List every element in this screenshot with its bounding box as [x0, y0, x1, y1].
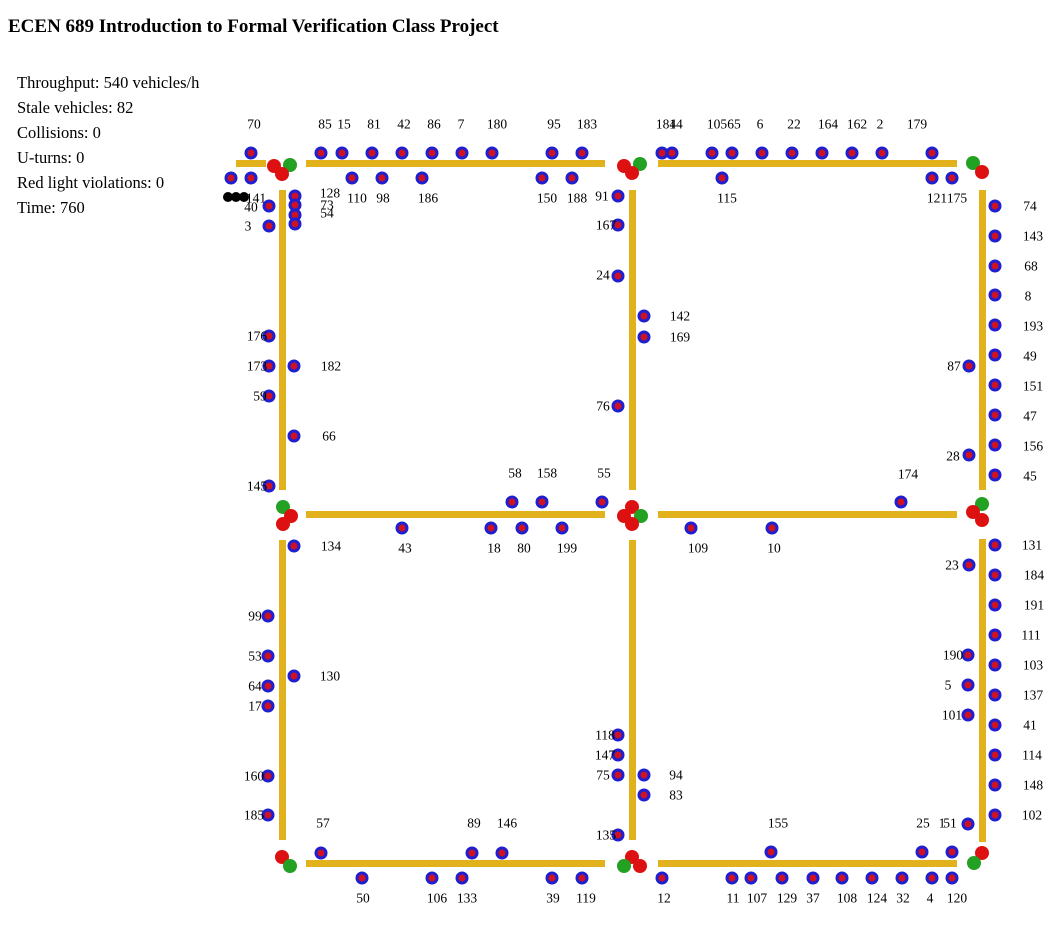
- vehicle-label: 65: [727, 117, 741, 131]
- vehicle-label: 87: [947, 359, 961, 373]
- traffic-light-red: [625, 517, 639, 531]
- vehicle-dot: [745, 872, 758, 885]
- stat-line-5: Time: 760: [17, 195, 199, 220]
- vehicle-dot: [566, 172, 579, 185]
- vehicle-label: 91: [595, 189, 609, 203]
- vehicle-dot: [426, 147, 439, 160]
- vehicle-label: 14: [669, 117, 683, 131]
- vehicle-label: 86: [427, 117, 441, 131]
- page-title: ECEN 689 Introduction to Formal Verifica…: [8, 16, 499, 38]
- vehicle-label: 2: [877, 117, 884, 131]
- vehicle-dot: [262, 610, 275, 623]
- vehicle-label: 131: [1022, 538, 1042, 552]
- road-segment: [236, 160, 266, 167]
- vehicle-dot: [946, 872, 959, 885]
- vehicle-label: 109: [688, 541, 708, 555]
- vehicle-dot: [776, 872, 789, 885]
- vehicle-dot: [638, 331, 651, 344]
- vehicle-dot: [546, 872, 559, 885]
- vehicle-label: 180: [487, 117, 507, 131]
- vehicle-dot: [416, 172, 429, 185]
- vehicle-label: 32: [896, 891, 910, 905]
- stat-line-2: Collisions: 0: [17, 120, 199, 145]
- vehicle-dot: [989, 349, 1002, 362]
- vehicle-label: 10: [767, 541, 781, 555]
- vehicle-dot: [876, 147, 889, 160]
- vehicle-dot: [916, 846, 929, 859]
- vehicle-dot: [666, 147, 679, 160]
- vehicle-dot: [989, 569, 1002, 582]
- vehicle-dot: [989, 719, 1002, 732]
- vehicle-dot: [685, 522, 698, 535]
- vehicle-label: 41: [1023, 718, 1037, 732]
- vehicle-label: 188: [567, 191, 587, 205]
- vehicle-dot: [786, 147, 799, 160]
- traffic-light-red: [276, 517, 290, 531]
- vehicle-dot: [576, 872, 589, 885]
- vehicle-label: 130: [320, 669, 340, 683]
- vehicle-label: 150: [537, 191, 557, 205]
- road-segment: [306, 160, 605, 167]
- vehicle-label: 39: [546, 891, 560, 905]
- vehicle-dot: [989, 289, 1002, 302]
- vehicle-dot: [245, 172, 258, 185]
- vehicle-label: 162: [847, 117, 867, 131]
- vehicle-label: 50: [356, 891, 370, 905]
- vehicle-dot: [756, 147, 769, 160]
- vehicle-dot: [288, 670, 301, 683]
- vehicle-label: 45: [1023, 469, 1037, 483]
- stat-line-0: Throughput: 540 vehicles/h: [17, 70, 199, 95]
- vehicle-dot: [496, 847, 509, 860]
- vehicle-label: 85: [318, 117, 332, 131]
- vehicle-label: 101: [942, 708, 962, 722]
- vehicle-dot: [288, 540, 301, 553]
- vehicle-dot: [895, 496, 908, 509]
- vehicle-label: 129: [777, 891, 797, 905]
- vehicle-label: 147: [595, 748, 615, 762]
- stat-line-1: Stale vehicles: 82: [17, 95, 199, 120]
- vehicle-label: 120: [947, 891, 967, 905]
- vehicle-dot: [546, 147, 559, 160]
- vehicle-dot: [596, 496, 609, 509]
- vehicle-dot: [765, 846, 778, 859]
- vehicle-label: 151: [1023, 379, 1043, 393]
- road-segment: [279, 190, 286, 490]
- vehicle-label: 23: [945, 558, 959, 572]
- vehicle-dot: [946, 846, 959, 859]
- vehicle-dot: [706, 147, 719, 160]
- vehicle-label: 43: [398, 541, 412, 555]
- vehicle-dot: [612, 769, 625, 782]
- vehicle-dot: [989, 539, 1002, 552]
- road-segment: [629, 540, 636, 840]
- vehicle-dot: [536, 172, 549, 185]
- vehicle-label: 11: [727, 891, 740, 905]
- vehicle-label: 134: [321, 539, 341, 553]
- traffic-light-green: [617, 859, 631, 873]
- traffic-light-red: [975, 513, 989, 527]
- vehicle-dot: [807, 872, 820, 885]
- vehicle-label: 193: [1023, 319, 1043, 333]
- vehicle-dot: [556, 522, 569, 535]
- vehicle-dot: [816, 147, 829, 160]
- vehicle-dot: [989, 779, 1002, 792]
- vehicle-dot: [962, 818, 975, 831]
- vehicle-label: 176: [247, 329, 267, 343]
- vehicle-dot: [516, 522, 529, 535]
- vehicle-dot: [926, 172, 939, 185]
- traffic-light-green: [283, 859, 297, 873]
- vehicle-label: 111: [1021, 628, 1040, 642]
- vehicle-label: 107: [747, 891, 767, 905]
- vehicle-dot: [486, 147, 499, 160]
- vehicle-label: 143: [1023, 229, 1043, 243]
- vehicle-label: 64: [248, 679, 262, 693]
- vehicle-dot: [506, 496, 519, 509]
- vehicle-label: 22: [787, 117, 801, 131]
- vehicle-label: 135: [596, 828, 616, 842]
- vehicle-dot: [989, 260, 1002, 273]
- vehicle-label: 99: [248, 609, 262, 623]
- stat-line-4: Red light violations: 0: [17, 170, 199, 195]
- vehicle-label: 59: [253, 389, 267, 403]
- vehicle-dot: [766, 522, 779, 535]
- vehicle-label: 74: [1023, 199, 1037, 213]
- vehicle-dot: [926, 147, 939, 160]
- road-segment: [979, 539, 986, 842]
- vehicle-label: 118: [595, 728, 615, 742]
- road-segment: [658, 160, 957, 167]
- vehicle-label: 12: [657, 891, 671, 905]
- vehicle-label: 40: [244, 200, 258, 214]
- vehicle-label: 6: [757, 117, 764, 131]
- vehicle-dot: [989, 319, 1002, 332]
- vehicle-label: 160: [244, 769, 264, 783]
- vehicle-label: 89: [467, 816, 481, 830]
- vehicle-dot: [989, 439, 1002, 452]
- vehicle-dot: [896, 872, 909, 885]
- vehicle-dot: [466, 847, 479, 860]
- traffic-light-red: [625, 166, 639, 180]
- vehicle-label: 110: [347, 191, 367, 205]
- vehicle-label: 186: [418, 191, 438, 205]
- vehicle-dot: [262, 650, 275, 663]
- road-segment: [306, 860, 605, 867]
- vehicle-dot: [315, 847, 328, 860]
- vehicle-label: 114: [1022, 748, 1042, 762]
- vehicle-label: 175: [947, 191, 967, 205]
- vehicle-dot: [225, 172, 238, 185]
- vehicle-label: 75: [596, 768, 610, 782]
- vehicle-dot: [262, 680, 275, 693]
- vehicle-label: 106: [427, 891, 447, 905]
- vehicle-label: 98: [376, 191, 390, 205]
- vehicle-label: 133: [457, 891, 477, 905]
- vehicle-label: 173: [247, 359, 267, 373]
- vehicle-label: 68: [1024, 259, 1038, 273]
- vehicle-label: 164: [818, 117, 838, 131]
- vehicle-label: 148: [1023, 778, 1043, 792]
- vehicle-dot: [263, 220, 276, 233]
- vehicle-dot: [989, 599, 1002, 612]
- vehicle-label: 146: [497, 816, 517, 830]
- vehicle-dot: [989, 409, 1002, 422]
- vehicle-dot: [836, 872, 849, 885]
- vehicle-label: 1: [939, 816, 946, 830]
- vehicle-dot: [396, 147, 409, 160]
- vehicle-dot: [262, 700, 275, 713]
- vehicle-dot: [396, 522, 409, 535]
- vehicle-dot: [336, 147, 349, 160]
- vehicle-label: 137: [1023, 688, 1043, 702]
- stat-line-3: U-turns: 0: [17, 145, 199, 170]
- vehicle-label: 57: [316, 816, 330, 830]
- vehicle-dot: [656, 872, 669, 885]
- vehicle-dot: [356, 872, 369, 885]
- vehicle-dot: [456, 147, 469, 160]
- vehicle-dot: [426, 872, 439, 885]
- vehicle-label: 145: [247, 479, 267, 493]
- vehicle-dot: [989, 469, 1002, 482]
- vehicle-dot: [726, 147, 739, 160]
- vehicle-label: 191: [1024, 598, 1044, 612]
- vehicle-dot: [289, 218, 302, 231]
- vehicle-label: 80: [517, 541, 531, 555]
- vehicle-label: 28: [946, 449, 960, 463]
- traffic-simulation-window: ECEN 689 Introduction to Formal Verifica…: [0, 0, 1048, 944]
- vehicle-label: 183: [577, 117, 597, 131]
- vehicle-dot: [989, 200, 1002, 213]
- vehicle-label: 182: [321, 359, 341, 373]
- vehicle-label: 115: [717, 191, 737, 205]
- vehicle-dot: [716, 172, 729, 185]
- vehicle-label: 17: [248, 699, 262, 713]
- vehicle-label: 174: [898, 467, 918, 481]
- vehicle-label: 7: [458, 117, 465, 131]
- vehicle-label: 184: [1024, 568, 1044, 582]
- vehicle-dot: [962, 649, 975, 662]
- vehicle-dot: [989, 689, 1002, 702]
- vehicle-dot: [638, 310, 651, 323]
- traffic-light-red: [275, 167, 289, 181]
- vehicle-dot: [962, 679, 975, 692]
- stale-vehicle-label-blob: [239, 192, 249, 202]
- vehicle-label: 108: [837, 891, 857, 905]
- vehicle-dot: [866, 872, 879, 885]
- vehicle-label: 3: [245, 219, 252, 233]
- vehicle-dot: [963, 449, 976, 462]
- vehicle-label: 169: [670, 330, 690, 344]
- vehicle-label: 142: [670, 309, 690, 323]
- vehicle-label: 158: [537, 466, 557, 480]
- vehicle-label: 5: [945, 678, 952, 692]
- stats-panel: Throughput: 540 vehicles/hStale vehicles…: [17, 70, 199, 220]
- vehicle-label: 15: [337, 117, 351, 131]
- vehicle-dot: [576, 147, 589, 160]
- vehicle-dot: [989, 629, 1002, 642]
- vehicle-label: 124: [867, 891, 887, 905]
- vehicle-dot: [638, 769, 651, 782]
- traffic-light-red: [633, 859, 647, 873]
- vehicle-label: 47: [1023, 409, 1037, 423]
- vehicle-dot: [245, 147, 258, 160]
- vehicle-dot: [963, 559, 976, 572]
- vehicle-dot: [638, 789, 651, 802]
- vehicle-label: 156: [1023, 439, 1043, 453]
- road-segment: [658, 860, 957, 867]
- vehicle-dot: [926, 872, 939, 885]
- road-segment: [279, 540, 286, 840]
- vehicle-label: 58: [508, 466, 522, 480]
- vehicle-label: 37: [806, 891, 820, 905]
- vehicle-label: 24: [596, 268, 610, 282]
- vehicle-label: 103: [1023, 658, 1043, 672]
- vehicle-dot: [989, 809, 1002, 822]
- vehicle-dot: [946, 172, 959, 185]
- vehicle-label: 42: [397, 117, 411, 131]
- vehicle-dot: [315, 147, 328, 160]
- vehicle-label: 190: [943, 648, 963, 662]
- vehicle-label: 83: [669, 788, 683, 802]
- vehicle-dot: [536, 496, 549, 509]
- vehicle-dot: [456, 872, 469, 885]
- vehicle-dot: [846, 147, 859, 160]
- vehicle-dot: [612, 400, 625, 413]
- vehicle-dot: [962, 709, 975, 722]
- vehicle-label: 4: [927, 891, 934, 905]
- traffic-light-green: [967, 856, 981, 870]
- vehicle-label: 55: [597, 466, 611, 480]
- vehicle-dot: [376, 172, 389, 185]
- vehicle-label: 199: [557, 541, 577, 555]
- vehicle-dot: [288, 360, 301, 373]
- vehicle-label: 179: [907, 117, 927, 131]
- vehicle-dot: [612, 270, 625, 283]
- vehicle-label: 95: [547, 117, 561, 131]
- vehicle-dot: [989, 659, 1002, 672]
- vehicle-dot: [485, 522, 498, 535]
- road-segment: [306, 511, 605, 518]
- traffic-light-red: [975, 165, 989, 179]
- road-segment: [629, 190, 636, 490]
- vehicle-label: 167: [596, 218, 616, 232]
- vehicle-label: 105: [707, 117, 727, 131]
- vehicle-label: 53: [248, 649, 262, 663]
- vehicle-label: 8: [1025, 289, 1032, 303]
- vehicle-dot: [288, 430, 301, 443]
- vehicle-dot: [963, 360, 976, 373]
- vehicle-label: 185: [244, 808, 264, 822]
- vehicle-dot: [346, 172, 359, 185]
- vehicle-label: 25: [916, 816, 930, 830]
- vehicle-label: 121: [927, 191, 947, 205]
- vehicle-label: 94: [669, 768, 683, 782]
- vehicle-label: 49: [1023, 349, 1037, 363]
- vehicle-dot: [989, 379, 1002, 392]
- vehicle-label: 119: [576, 891, 596, 905]
- vehicle-dot: [989, 230, 1002, 243]
- vehicle-label: 66: [322, 429, 336, 443]
- vehicle-label: 70: [247, 117, 261, 131]
- vehicle-label: 76: [596, 399, 610, 413]
- vehicle-dot: [612, 190, 625, 203]
- vehicle-label: 54: [320, 206, 334, 220]
- road-segment: [979, 190, 986, 490]
- vehicle-dot: [366, 147, 379, 160]
- vehicle-dot: [989, 749, 1002, 762]
- vehicle-label: 81: [367, 117, 381, 131]
- vehicle-label: 18: [487, 541, 501, 555]
- vehicle-label: 102: [1022, 808, 1042, 822]
- vehicle-dot: [263, 200, 276, 213]
- vehicle-dot: [726, 872, 739, 885]
- road-segment: [658, 511, 957, 518]
- vehicle-label: 155: [768, 816, 788, 830]
